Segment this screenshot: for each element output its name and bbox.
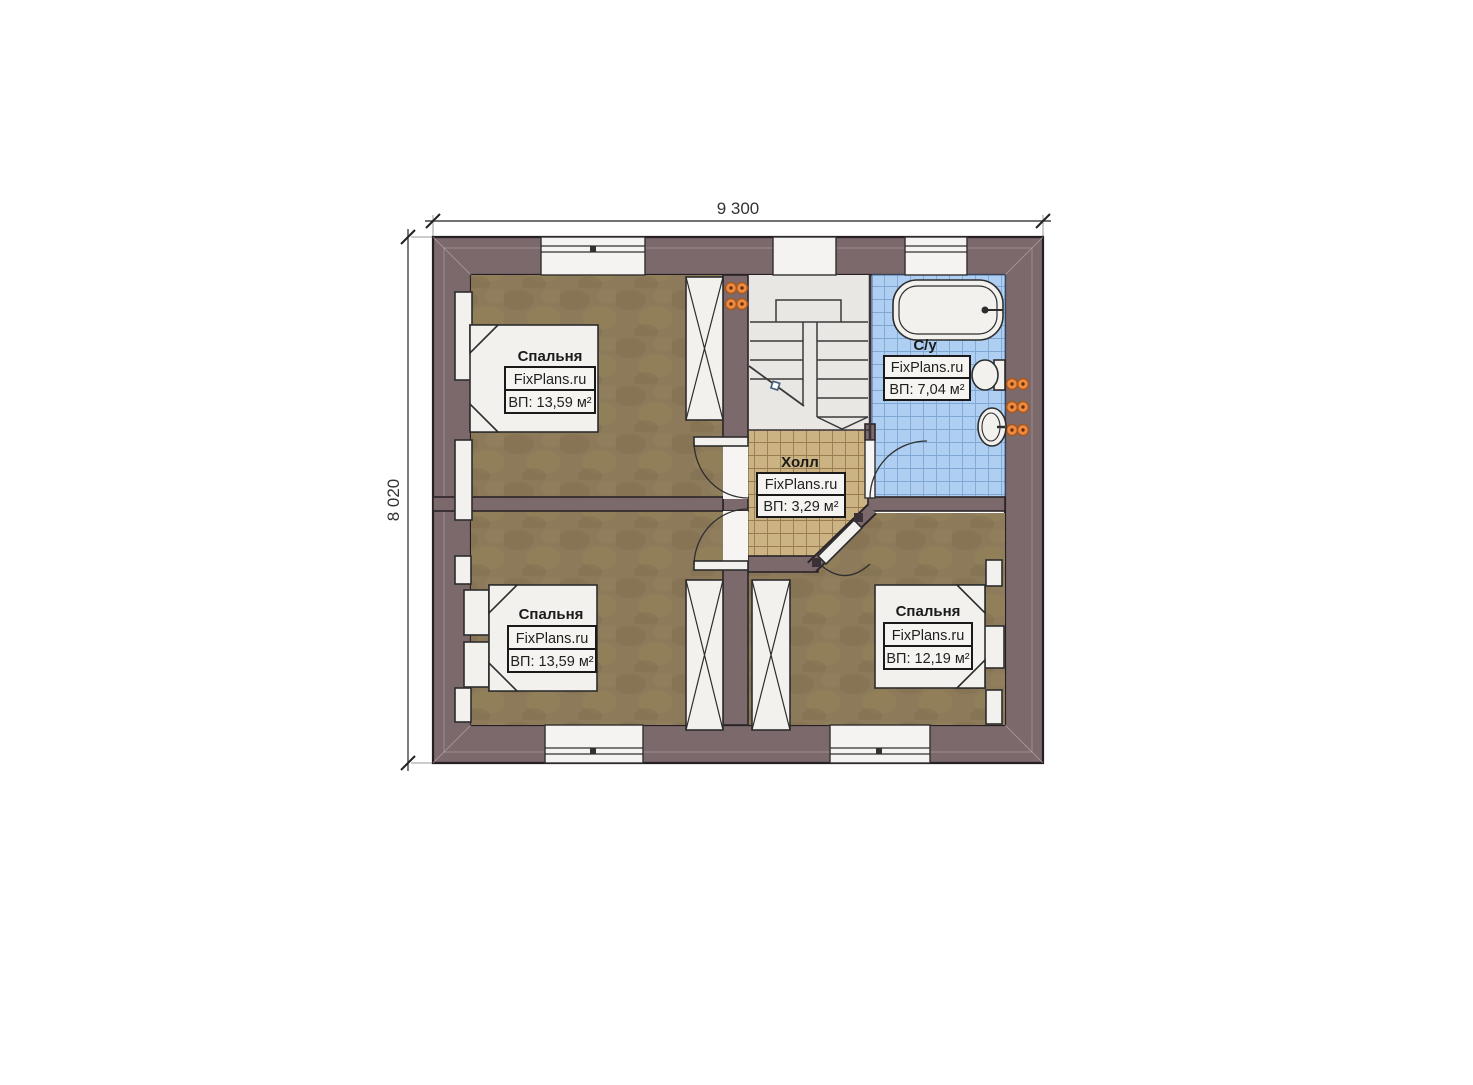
- room-brand: FixPlans.ru: [516, 631, 589, 647]
- room-name: Спальня: [896, 603, 961, 620]
- window-bottom-right-bedroom: [830, 725, 930, 763]
- room-brand: FixPlans.ru: [891, 360, 964, 376]
- dimension-left: 8 020: [384, 229, 433, 771]
- wall-cabinet: [986, 690, 1002, 724]
- stair-break-marker: [771, 381, 780, 390]
- wall-cabinet: [455, 688, 471, 722]
- window-top-bedroom: [541, 237, 645, 275]
- wall-left-bedrooms-divider: [433, 497, 723, 511]
- sink: [978, 408, 1006, 446]
- room-name: С/у: [913, 337, 937, 354]
- wardrobe: [752, 580, 790, 730]
- stairwell-floor: [748, 275, 870, 430]
- wardrobe: [686, 277, 723, 420]
- window-bathroom: [905, 237, 967, 275]
- window-bottom-left-bedroom: [545, 725, 643, 763]
- wardrobe: [686, 580, 723, 730]
- dimension-top: 9 300: [425, 199, 1051, 237]
- floor-plan-drawing: 9 300 8 020: [0, 0, 1473, 1080]
- room-name: Спальня: [519, 606, 584, 623]
- room-area: ВП: 13,59 м²: [508, 395, 591, 411]
- door-leaf: [694, 561, 748, 570]
- wall-hall-south: [748, 556, 818, 572]
- label-bedroom-bottom-left: Спальня FixPlans.ru ВП: 13,59 м²: [508, 606, 596, 672]
- label-bedroom-top-left: Спальня FixPlans.ru ВП: 13,59 м²: [505, 348, 595, 413]
- nightstand: [464, 642, 489, 687]
- room-area: ВП: 7,04 м²: [889, 382, 964, 398]
- toilet: [972, 360, 1005, 390]
- window-stairwell: [773, 237, 836, 275]
- room-area: ВП: 12,19 м²: [886, 651, 969, 667]
- dimension-top-value: 9 300: [717, 199, 760, 218]
- room-area: ВП: 3,29 м²: [763, 499, 838, 515]
- door-leaf: [694, 437, 748, 446]
- wall-under-bathroom: [868, 497, 1005, 511]
- bathtub: [893, 280, 1003, 340]
- dimension-left-value: 8 020: [384, 479, 403, 522]
- room-name: Спальня: [518, 348, 583, 365]
- nightstand: [455, 440, 472, 520]
- wall-center-south: [723, 562, 748, 725]
- room-brand: FixPlans.ru: [892, 628, 965, 644]
- room-brand: FixPlans.ru: [514, 372, 587, 388]
- floor-plan-page: 9 300 8 020: [0, 0, 1473, 1080]
- label-bedroom-bottom-right: Спальня FixPlans.ru ВП: 12,19 м²: [884, 603, 972, 669]
- room-area: ВП: 13,59 м²: [510, 654, 593, 670]
- room-name: Холл: [781, 454, 819, 471]
- wall-cabinet: [986, 560, 1002, 586]
- room-brand: FixPlans.ru: [765, 477, 838, 493]
- nightstand: [464, 590, 489, 635]
- wall-cabinet: [455, 556, 471, 584]
